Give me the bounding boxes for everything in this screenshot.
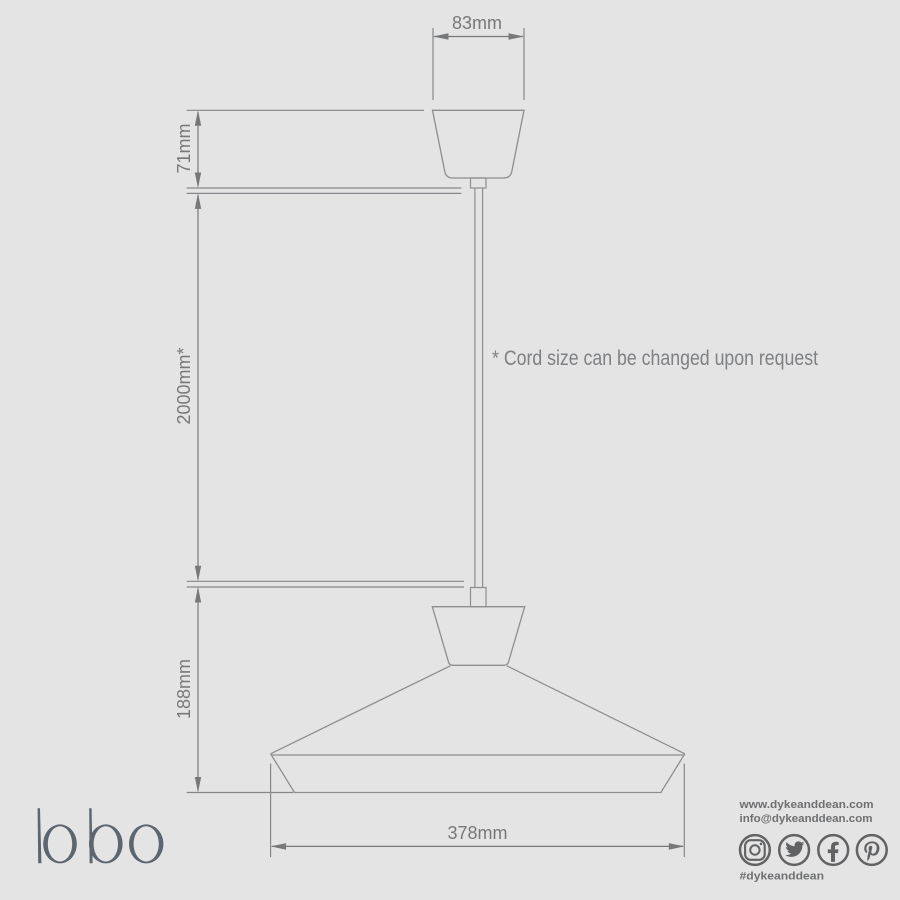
svg-text:www.dykeanddean.com: www.dykeanddean.com <box>738 799 873 811</box>
svg-text:378mm: 378mm <box>447 823 507 843</box>
svg-text:2000mm*: 2000mm* <box>174 347 194 424</box>
svg-text:83mm: 83mm <box>452 13 502 33</box>
svg-text:#dykeanddean: #dykeanddean <box>740 871 825 883</box>
svg-text:71mm: 71mm <box>174 123 194 173</box>
svg-text:188mm: 188mm <box>174 659 194 719</box>
svg-text:* Cord size can be changed upo: * Cord size can be changed upon request <box>492 346 818 370</box>
svg-text:info@dykeanddean.com: info@dykeanddean.com <box>740 813 873 825</box>
